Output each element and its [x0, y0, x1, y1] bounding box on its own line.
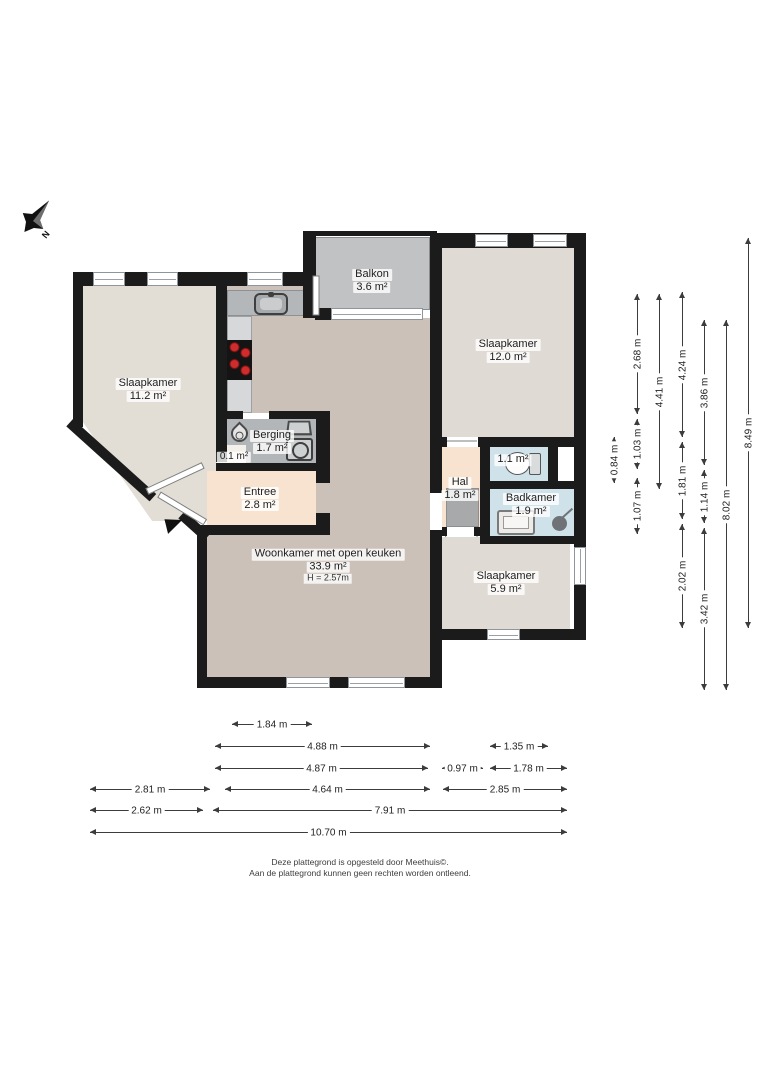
dimension-vertical: 2.02 m	[678, 524, 687, 628]
dimension-part	[443, 786, 449, 792]
dimension-part	[701, 459, 707, 465]
dimension-part	[723, 684, 729, 690]
room-label-text: 12.0 m²	[486, 352, 529, 364]
room-label-text: 2.8 m²	[241, 500, 278, 512]
dimension-part	[197, 807, 203, 813]
dimension-label: 1.14 m	[699, 478, 710, 515]
wall	[480, 481, 576, 489]
dimension-horizontal: 4.87 m	[215, 764, 428, 773]
window	[574, 547, 586, 585]
dimension-label: 1.78 m	[510, 763, 547, 774]
dimension-part	[561, 829, 567, 835]
dimension-vertical: 2.68 m	[633, 294, 642, 414]
room-label-text: Hal	[449, 477, 472, 489]
dimension-horizontal: 10.70 m	[90, 828, 567, 837]
dimension-label: 2.62 m	[128, 805, 165, 816]
dimension-label: 7.91 m	[372, 805, 409, 816]
window	[487, 629, 520, 640]
dimension-label: 4.24 m	[677, 346, 688, 383]
dimension-vertical: 4.41 m	[655, 294, 664, 489]
room-label-woonkamer: Woonkamer met open keuken33.9 m²H = 2.57…	[252, 548, 405, 585]
disclaimer-line1: Deze plattegrond is opgesteld door Meeth…	[130, 857, 590, 868]
wall	[316, 513, 330, 535]
wall	[474, 527, 482, 536]
cooktop-icon	[227, 340, 252, 380]
dimension-part	[679, 524, 685, 530]
room-label-slaapkamer-right: Slaapkamer12.0 m²	[476, 338, 541, 364]
wall	[227, 411, 243, 419]
dimension-vertical: 1.07 m	[633, 478, 642, 534]
dimension-part	[561, 765, 567, 771]
room-label-text: 1.8 m²	[441, 490, 478, 502]
room-label-toilet: 1.1 m²	[494, 453, 531, 467]
room-label-text: Badkamer	[503, 493, 559, 505]
dimension-label: 1.35 m	[501, 741, 538, 752]
dimension-part	[225, 786, 231, 792]
room-label-slaapkamer-left: Slaapkamer11.2 m²	[116, 377, 181, 403]
dimension-part	[745, 238, 751, 244]
dimension-label: 4.87 m	[303, 763, 340, 774]
dimension-label: 1.81 m	[677, 462, 688, 499]
dimension-part	[701, 684, 707, 690]
dimension-part	[490, 743, 496, 749]
room-label-entree: Entree2.8 m²	[241, 486, 279, 512]
floorplan-page: N Deze plattegrond is opgesteld door Mee…	[0, 0, 764, 1080]
dimension-label: 1.03 m	[632, 426, 643, 463]
dimension-part	[656, 483, 662, 489]
dimension-part	[306, 721, 312, 727]
room-label-text: 3.6 m²	[353, 282, 390, 294]
dimension-horizontal: 1.78 m	[490, 764, 567, 773]
dimension-part	[723, 320, 729, 326]
wall	[73, 272, 83, 427]
wall	[216, 463, 330, 471]
window	[247, 272, 283, 286]
dimension-label: 2.02 m	[677, 558, 688, 595]
wall	[430, 248, 442, 493]
dimension-part	[634, 463, 640, 469]
dimension-part	[215, 765, 221, 771]
dimension-horizontal: 7.91 m	[213, 806, 567, 815]
dimension-vertical: 1.81 m	[678, 442, 687, 519]
dimension-part	[701, 517, 707, 523]
dimension-label: 2.81 m	[132, 784, 169, 795]
dimension-label: 3.42 m	[699, 591, 710, 628]
room-label-text: 11.2 m²	[127, 391, 169, 403]
window	[533, 234, 567, 247]
room-label-text: 0.1 m²	[217, 452, 251, 463]
dimension-part	[679, 292, 685, 298]
wall	[442, 527, 447, 536]
dimension-part	[701, 470, 707, 476]
dimension-label: 1.84 m	[254, 719, 291, 730]
dimension-horizontal: 2.62 m	[90, 806, 203, 815]
dimension-vertical: 1.03 m	[633, 419, 642, 469]
dimension-label: 4.88 m	[304, 741, 341, 752]
dimension-part	[90, 807, 96, 813]
room-label-hal: Hal1.8 m²	[441, 476, 478, 502]
wall	[303, 231, 437, 236]
room-label-text: Woonkamer met open keuken	[252, 549, 405, 561]
room-label-text: Slaapkamer	[476, 339, 541, 351]
dimension-vertical: 0.84 m	[610, 437, 619, 483]
wall	[430, 530, 442, 677]
window	[147, 272, 178, 286]
room-label-text: Slaapkamer	[116, 378, 181, 390]
room-label-kast: 0.1 m²	[217, 451, 251, 464]
dimension-part	[422, 765, 428, 771]
room-label-balkon: Balkon3.6 m²	[352, 268, 392, 294]
room-label-berging: Berging1.7 m²	[250, 429, 294, 455]
dimension-part	[679, 431, 685, 437]
svg-text:N: N	[40, 229, 52, 240]
dimension-part	[679, 622, 685, 628]
dimension-part	[90, 786, 96, 792]
dimension-label: 10.70 m	[307, 827, 349, 838]
dimension-part	[701, 528, 707, 534]
dimension-label: 8.02 m	[721, 487, 732, 524]
window	[331, 308, 423, 320]
wall	[216, 286, 227, 462]
dimension-part	[634, 294, 640, 300]
dimension-part	[561, 807, 567, 813]
door-leaf	[313, 276, 320, 316]
kitchen-sink-icon	[254, 293, 288, 315]
room-label-text: 1.1 m²	[494, 454, 531, 466]
dimension-part	[679, 442, 685, 448]
dimension-horizontal: 1.84 m	[232, 720, 312, 729]
room-floor-niche	[556, 449, 574, 479]
room-label-text: Slaapkamer	[474, 571, 539, 583]
wall	[480, 536, 576, 544]
dimension-vertical: 8.02 m	[722, 320, 731, 690]
dimension-part	[634, 528, 640, 534]
dimension-horizontal: 1.35 m	[490, 742, 548, 751]
dimension-horizontal: 4.64 m	[225, 785, 430, 794]
dimension-label: 0.84 m	[609, 442, 620, 479]
room-label-badkamer: Badkamer1.9 m²	[503, 492, 559, 518]
dimension-label: 3.86 m	[699, 374, 710, 411]
wall	[197, 525, 330, 535]
dimension-part	[213, 807, 219, 813]
dimension-vertical: 3.42 m	[700, 528, 709, 690]
room-label-slaapkamer-small: Slaapkamer5.9 m²	[474, 570, 539, 596]
room-floor-woonkamer-main	[315, 318, 430, 678]
dimension-label: 4.64 m	[309, 784, 346, 795]
dimension-part	[679, 513, 685, 519]
dimension-part	[204, 786, 210, 792]
room-label-text: 1.9 m²	[512, 506, 549, 518]
dimension-horizontal: 0.97 m	[442, 764, 483, 773]
disclaimer: Deze plattegrond is opgesteld door Meeth…	[130, 857, 590, 880]
dimension-part	[701, 320, 707, 326]
dimension-part	[215, 743, 221, 749]
room-label-text: 5.9 m²	[487, 584, 524, 596]
dimension-label: 2.85 m	[487, 784, 524, 795]
dimension-part	[656, 294, 662, 300]
wall	[478, 437, 576, 447]
dimension-horizontal: 4.88 m	[215, 742, 430, 751]
dimension-part	[232, 721, 238, 727]
dimension-horizontal: 2.85 m	[443, 785, 567, 794]
dimension-part	[561, 786, 567, 792]
room-height-text: H = 2.57m	[304, 574, 352, 583]
dimension-label: 2.68 m	[632, 336, 643, 373]
dimension-part	[634, 478, 640, 484]
dimension-vertical: 1.14 m	[700, 470, 709, 523]
room-label-text: Berging	[250, 430, 294, 442]
dimension-part	[490, 765, 496, 771]
dimension-vertical: 3.86 m	[700, 320, 709, 465]
room-label-text: 33.9 m²	[306, 561, 349, 573]
dimension-label: 1.07 m	[632, 488, 643, 525]
wall	[197, 527, 207, 688]
room-label-text: Entree	[241, 487, 279, 499]
dimension-part	[634, 408, 640, 414]
room-label-text: 1.7 m²	[253, 443, 290, 455]
dimension-label: 4.41 m	[654, 373, 665, 410]
dimension-part	[424, 786, 430, 792]
dimension-part	[90, 829, 96, 835]
dimension-label: 8.49 m	[743, 415, 754, 452]
dimension-vertical: 8.49 m	[744, 238, 753, 628]
disclaimer-line2: Aan de plattegrond kunnen geen rechten w…	[130, 868, 590, 879]
wall	[548, 447, 558, 481]
dimension-part	[542, 743, 548, 749]
window	[93, 272, 125, 286]
compass-icon: N	[14, 193, 59, 241]
window	[348, 677, 405, 688]
wall	[430, 437, 447, 447]
window	[475, 234, 508, 247]
dimension-part	[634, 419, 640, 425]
dimension-part	[424, 743, 430, 749]
wall	[316, 411, 330, 483]
dimension-vertical: 4.24 m	[678, 292, 687, 437]
dimension-label: 0.97 m	[444, 763, 481, 774]
room-label-text: Balkon	[352, 269, 392, 281]
dimension-horizontal: 2.81 m	[90, 785, 210, 794]
dimension-part	[745, 622, 751, 628]
window	[286, 677, 330, 688]
